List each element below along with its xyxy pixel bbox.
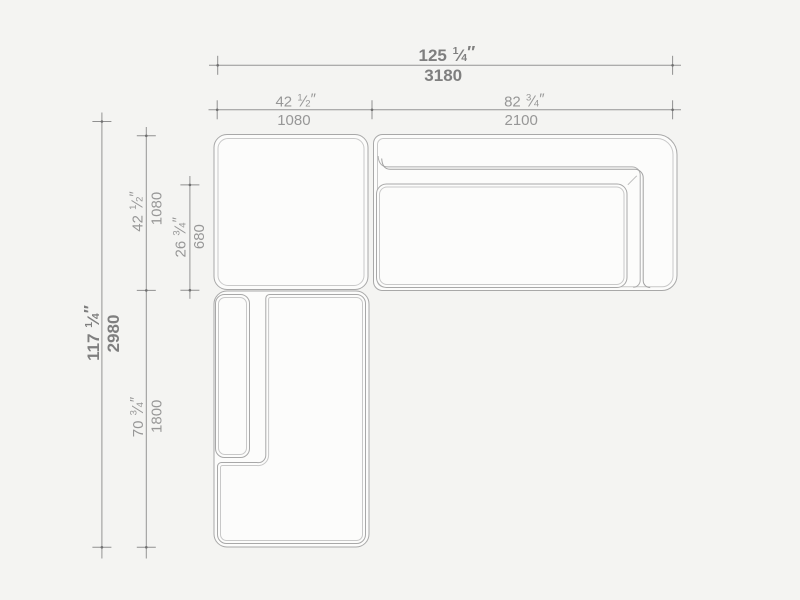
svg-text:26 3⁄4″: 26 3⁄4″ (170, 216, 190, 257)
svg-text:1800: 1800 (148, 400, 165, 433)
svg-text:680: 680 (191, 224, 208, 249)
svg-text:70 3⁄4″: 70 3⁄4″ (127, 396, 147, 437)
svg-text:117 1⁄4″: 117 1⁄4″ (81, 305, 103, 361)
svg-text:82 3⁄4″: 82 3⁄4″ (504, 91, 545, 111)
svg-text:42 1⁄2″: 42 1⁄2″ (126, 191, 146, 232)
svg-text:1080: 1080 (277, 112, 310, 129)
svg-text:3180: 3180 (424, 66, 462, 85)
svg-text:2100: 2100 (505, 112, 538, 129)
svg-text:2980: 2980 (104, 315, 123, 353)
svg-text:125 1⁄4″: 125 1⁄4″ (419, 43, 476, 65)
svg-text:1080: 1080 (149, 192, 166, 225)
svg-text:42 1⁄2″: 42 1⁄2″ (275, 91, 316, 111)
